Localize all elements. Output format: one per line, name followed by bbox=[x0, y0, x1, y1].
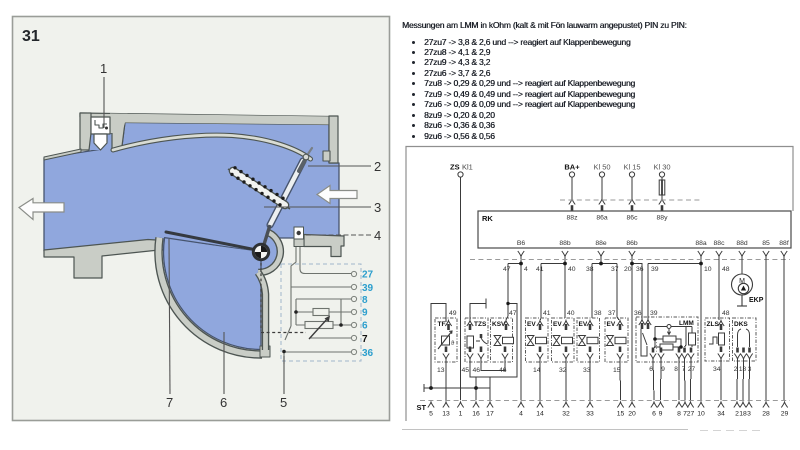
svg-text:Kl 30: Kl 30 bbox=[653, 163, 670, 172]
svg-text:18: 18 bbox=[739, 366, 747, 373]
svg-text:38: 38 bbox=[586, 266, 594, 273]
svg-text:6: 6 bbox=[362, 321, 368, 332]
svg-text:34: 34 bbox=[717, 411, 725, 418]
svg-text:6: 6 bbox=[649, 366, 653, 373]
svg-text:29: 29 bbox=[781, 411, 789, 418]
svg-text:1: 1 bbox=[100, 61, 107, 76]
svg-text:RK: RK bbox=[482, 214, 493, 223]
svg-text:ST: ST bbox=[417, 403, 427, 412]
svg-text:27: 27 bbox=[362, 270, 374, 281]
svg-text:48: 48 bbox=[722, 266, 730, 273]
svg-text:Kl1: Kl1 bbox=[462, 163, 473, 172]
svg-text:39: 39 bbox=[651, 266, 659, 273]
svg-text:DKS: DKS bbox=[734, 321, 748, 328]
svg-text:7: 7 bbox=[682, 366, 686, 373]
svg-text:Kl 50: Kl 50 bbox=[593, 163, 610, 172]
svg-text:88d: 88d bbox=[736, 240, 748, 247]
svg-text:2: 2 bbox=[374, 159, 381, 174]
svg-text:M: M bbox=[739, 278, 745, 285]
svg-text:Kl 15: Kl 15 bbox=[623, 163, 640, 172]
svg-text:41: 41 bbox=[536, 266, 544, 273]
svg-text:41: 41 bbox=[543, 310, 551, 317]
svg-text:4: 4 bbox=[524, 266, 528, 273]
svg-text:EKP: EKP bbox=[749, 297, 764, 304]
svg-text:86c: 86c bbox=[627, 215, 639, 222]
svg-text:6: 6 bbox=[220, 395, 227, 410]
svg-text:ϑ: ϑ bbox=[451, 341, 455, 347]
svg-text:B6: B6 bbox=[517, 240, 526, 247]
svg-text:47: 47 bbox=[509, 310, 517, 317]
svg-text:48: 48 bbox=[722, 310, 730, 317]
svg-text:27: 27 bbox=[688, 366, 696, 373]
svg-text:40: 40 bbox=[567, 310, 575, 317]
svg-text:86a: 86a bbox=[596, 215, 608, 222]
svg-text:EV: EV bbox=[579, 321, 588, 328]
svg-text:39: 39 bbox=[362, 283, 374, 294]
svg-text:28: 28 bbox=[762, 411, 770, 418]
svg-text:4: 4 bbox=[519, 411, 523, 418]
svg-text:17: 17 bbox=[486, 411, 494, 418]
svg-text:36: 36 bbox=[634, 310, 642, 317]
svg-text:33: 33 bbox=[583, 367, 591, 374]
svg-text:32: 32 bbox=[562, 411, 570, 418]
svg-text:8: 8 bbox=[674, 366, 678, 373]
svg-text:38: 38 bbox=[594, 310, 602, 317]
svg-text:14: 14 bbox=[533, 367, 541, 374]
svg-text:TZS: TZS bbox=[474, 321, 487, 328]
svg-text:40: 40 bbox=[568, 266, 576, 273]
svg-text:EV: EV bbox=[553, 321, 562, 328]
svg-text:34: 34 bbox=[713, 366, 721, 373]
svg-text:3: 3 bbox=[374, 200, 381, 215]
svg-text:15: 15 bbox=[613, 367, 621, 374]
svg-text:13: 13 bbox=[442, 411, 450, 418]
svg-text:8: 8 bbox=[677, 411, 681, 418]
svg-text:86b: 86b bbox=[626, 240, 638, 247]
svg-text:33: 33 bbox=[586, 411, 594, 418]
svg-text:49: 49 bbox=[449, 310, 457, 317]
svg-text:20: 20 bbox=[628, 411, 636, 418]
svg-text:ZS: ZS bbox=[450, 163, 460, 172]
svg-text:45: 45 bbox=[462, 367, 470, 374]
svg-text:46: 46 bbox=[473, 367, 481, 374]
svg-text:46: 46 bbox=[499, 367, 507, 374]
svg-text:3: 3 bbox=[747, 411, 751, 418]
svg-text:10: 10 bbox=[704, 266, 712, 273]
svg-text:88z: 88z bbox=[567, 215, 579, 222]
svg-text:9: 9 bbox=[661, 366, 665, 373]
svg-text:88a: 88a bbox=[695, 240, 707, 247]
svg-text:31: 31 bbox=[22, 28, 40, 45]
svg-text:85: 85 bbox=[762, 240, 770, 247]
svg-text:5: 5 bbox=[280, 395, 287, 410]
svg-text:39: 39 bbox=[650, 310, 658, 317]
svg-text:88f: 88f bbox=[779, 240, 789, 247]
svg-text:1: 1 bbox=[459, 411, 463, 418]
svg-text:EV: EV bbox=[527, 321, 536, 328]
svg-text:27: 27 bbox=[687, 411, 695, 418]
svg-text:LMM: LMM bbox=[679, 320, 694, 327]
svg-text:ZLS: ZLS bbox=[707, 321, 720, 328]
svg-text:18: 18 bbox=[739, 411, 747, 418]
svg-text:9: 9 bbox=[659, 411, 663, 418]
svg-text:7: 7 bbox=[362, 334, 368, 345]
svg-text:37: 37 bbox=[608, 310, 616, 317]
svg-text:36: 36 bbox=[362, 348, 374, 359]
svg-text:3: 3 bbox=[748, 366, 752, 373]
svg-text:47: 47 bbox=[503, 266, 511, 273]
svg-text:88c: 88c bbox=[714, 240, 726, 247]
svg-text:EV: EV bbox=[607, 321, 616, 328]
svg-text:TF: TF bbox=[438, 321, 446, 328]
svg-text:37: 37 bbox=[611, 266, 619, 273]
svg-text:2: 2 bbox=[734, 366, 738, 373]
svg-text:15: 15 bbox=[617, 411, 625, 418]
svg-text:16: 16 bbox=[472, 411, 480, 418]
svg-text:36: 36 bbox=[636, 266, 644, 273]
svg-text:7: 7 bbox=[166, 395, 173, 410]
svg-text:10: 10 bbox=[697, 411, 705, 418]
svg-text:5: 5 bbox=[429, 411, 433, 418]
svg-text:88e: 88e bbox=[595, 240, 607, 247]
svg-text:8: 8 bbox=[362, 295, 368, 306]
svg-text:32: 32 bbox=[559, 367, 567, 374]
svg-text:88b: 88b bbox=[559, 240, 571, 247]
svg-text:20: 20 bbox=[624, 266, 632, 273]
svg-text:4: 4 bbox=[374, 228, 381, 243]
svg-text:13: 13 bbox=[437, 367, 445, 374]
svg-text:6: 6 bbox=[652, 411, 656, 418]
svg-text:14: 14 bbox=[536, 411, 544, 418]
svg-text:88y: 88y bbox=[657, 215, 669, 222]
svg-text:BA+: BA+ bbox=[564, 163, 580, 172]
svg-text:9: 9 bbox=[362, 308, 368, 319]
